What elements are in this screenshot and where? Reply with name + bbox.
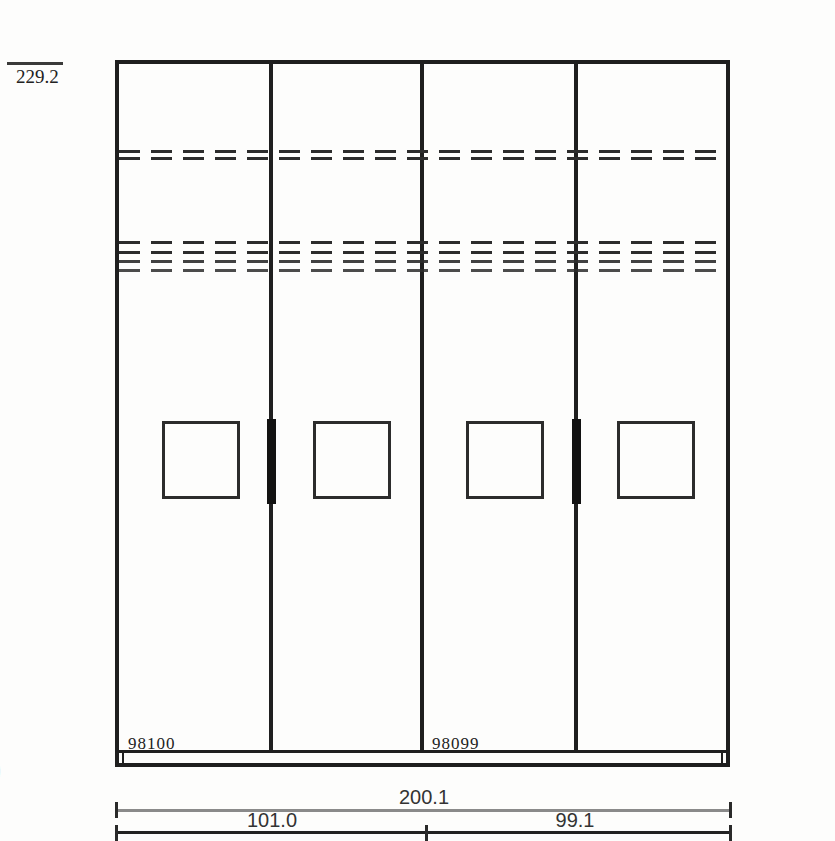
- split-width-tick-middle: [425, 825, 428, 841]
- door-window-3: [466, 421, 544, 499]
- plinth-foot-left: [122, 753, 124, 764]
- plinth-foot-right: [721, 753, 723, 764]
- mid-shelf-dashed-line: [119, 269, 726, 272]
- plinth-line: [119, 750, 726, 753]
- total-width-tick-left: [115, 802, 118, 818]
- article-number-left: 98100: [128, 734, 176, 754]
- mid-shelf-dashed-line: [119, 260, 726, 263]
- mid-shelf-dashed-line: [119, 241, 726, 244]
- door-handle-right-pair: [572, 419, 581, 504]
- article-number-right: 98099: [432, 734, 480, 754]
- door-handle-left-pair: [267, 419, 276, 504]
- door-divider-1: [269, 64, 273, 753]
- height-dimension-label: 229.2: [16, 66, 59, 88]
- height-dimension-line: [7, 62, 63, 65]
- door-divider-3: [574, 64, 578, 753]
- total-width-label: 200.1: [379, 786, 469, 809]
- split-width-dimension-line: [117, 831, 731, 834]
- total-width-dimension-line: [117, 809, 731, 812]
- split-width-tick-left: [115, 825, 118, 841]
- left-width-label: 101.0: [227, 809, 317, 832]
- top-shelf-dashed-line: [119, 157, 726, 160]
- top-shelf-dashed-line: [119, 150, 726, 153]
- door-window-2: [313, 421, 391, 499]
- clipped-edge-mark: ): [0, 746, 2, 790]
- right-width-label: 99.1: [530, 809, 620, 832]
- mid-shelf-dashed-line: [119, 251, 726, 254]
- split-width-tick-right: [729, 825, 732, 841]
- technical-drawing: 229.2 98100 98099 200.1 101.0 99.1 ): [0, 0, 835, 841]
- door-divider-2: [420, 64, 424, 753]
- door-window-1: [162, 421, 240, 499]
- total-width-tick-right: [729, 802, 732, 818]
- door-window-4: [617, 421, 695, 499]
